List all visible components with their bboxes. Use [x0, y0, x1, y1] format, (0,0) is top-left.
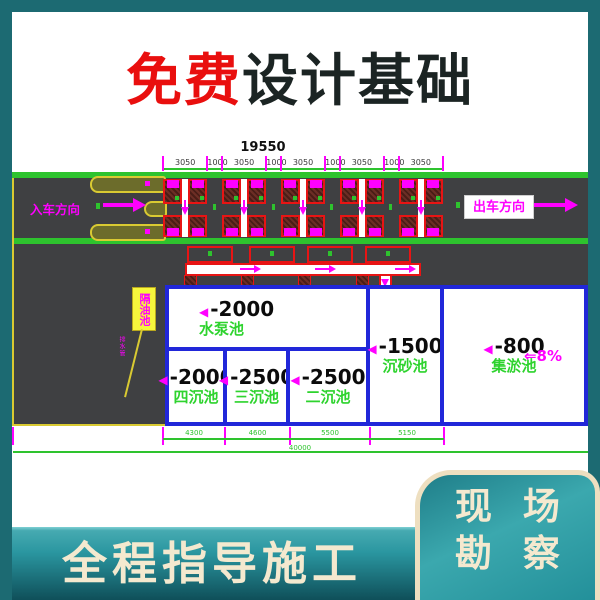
- slope-label: ⇐8%: [524, 347, 562, 365]
- pipe-note: 排水管: [117, 336, 126, 398]
- channel-arrow: [240, 268, 254, 270]
- green-mark: [293, 196, 297, 200]
- wash-pad: [369, 180, 381, 188]
- wash-pad: [310, 228, 322, 236]
- slot-arrow: [302, 200, 304, 207]
- title-rest: 设计基础: [242, 49, 474, 114]
- channel-arrow: [395, 268, 409, 270]
- green-mark: [208, 251, 212, 256]
- pool-depth: ◀-2500: [219, 367, 294, 388]
- dim-seg-label: 3050: [399, 158, 443, 167]
- corner-panel: 现 场 勘 察: [415, 470, 600, 600]
- channel-arrow-head: [254, 265, 261, 273]
- wash-pad: [427, 228, 439, 236]
- dimension-total-label: 19550: [233, 140, 293, 155]
- green-mark: [411, 196, 415, 200]
- traffic-island-bottom: [90, 224, 166, 241]
- aisle-mark: [330, 204, 333, 210]
- green-mark: [200, 196, 204, 200]
- green-mark: [352, 196, 356, 200]
- slot-arrow-head: [358, 207, 366, 215]
- slot-arrow-head: [240, 207, 248, 215]
- green-mark: [96, 203, 100, 209]
- callout-box: 隔油池: [132, 287, 156, 331]
- dim-seg-label: 3050: [281, 158, 325, 167]
- corner-panel-line2: 勘 察: [420, 530, 595, 577]
- wash-pad: [251, 228, 263, 236]
- aisle-mark: [272, 204, 275, 210]
- pool-name: 三沉池: [234, 388, 279, 406]
- wash-pad: [402, 228, 414, 236]
- slot-arrow-head: [299, 207, 307, 215]
- traffic-island-top: [90, 176, 166, 193]
- slot-arrow-head: [417, 207, 425, 215]
- exit-direction-label: 出车方向: [473, 200, 525, 215]
- entry-direction-label: 入车方向: [30, 199, 80, 218]
- pool-depth: ◀-2500: [290, 367, 365, 388]
- dim-seg-label: 1000: [325, 158, 340, 167]
- entry-arrow: [103, 203, 133, 207]
- wash-pad: [226, 180, 238, 188]
- green-mark: [377, 196, 381, 200]
- dim-seg-label: 3050: [340, 158, 384, 167]
- slot-arrow: [420, 200, 422, 207]
- wash-pad: [310, 180, 322, 188]
- page-title: 免费设计基础: [0, 42, 600, 122]
- wash-pad: [192, 228, 204, 236]
- wash-pad: [369, 228, 381, 236]
- banner-text: 全程指导施工: [12, 527, 412, 600]
- dim-seg-label: 3050: [163, 158, 207, 167]
- green-mark: [386, 251, 390, 256]
- dim-seg-label: 1000: [266, 158, 281, 167]
- depth-arrow-icon: ◀: [290, 373, 299, 387]
- corner-panel-line1: 现 场: [420, 483, 595, 530]
- aisle-mark: [213, 204, 216, 210]
- dim-seg-label: 1000: [384, 158, 399, 167]
- green-mark: [234, 196, 238, 200]
- dim-seg-label: 3050: [222, 158, 266, 167]
- slot-arrow: [243, 200, 245, 207]
- green-mark: [318, 196, 322, 200]
- dim-seg-label: 4300: [163, 429, 225, 437]
- pool-depth: ◀-2000: [199, 299, 274, 320]
- dim-seg-label: 5150: [370, 429, 444, 437]
- pool-depth: ◀-1500: [367, 336, 442, 357]
- pool-pump: ◀-2000水泵池: [165, 285, 370, 351]
- depth-arrow-icon: ◀: [158, 373, 167, 387]
- exit-direction-box: 出车方向: [464, 195, 534, 219]
- slot-arrow: [361, 200, 363, 207]
- pool-three: ◀-2500三沉池: [223, 347, 290, 426]
- wash-pad: [343, 228, 355, 236]
- exit-arrow-head: [565, 198, 578, 212]
- pool-mud: ◀-800集淤池⇐8%: [440, 285, 588, 426]
- green-mark: [328, 251, 332, 256]
- wash-pad: [192, 180, 204, 188]
- slot-arrow-head: [181, 207, 189, 215]
- pool-name: 二沉池: [305, 388, 350, 406]
- depth-arrow-icon: ◀: [219, 373, 228, 387]
- entry-arrow-head: [133, 198, 146, 212]
- wash-pad: [402, 180, 414, 188]
- wash-pad: [226, 228, 238, 236]
- site-boundary-left: [12, 178, 14, 426]
- wash-pad: [167, 180, 179, 188]
- slot-arrow: [184, 200, 186, 207]
- wash-pad: [343, 180, 355, 188]
- pool-sand: ◀-1500沉砂池: [366, 285, 444, 426]
- wash-pad: [284, 180, 296, 188]
- wash-pad: [251, 180, 263, 188]
- pool-two: ◀-2500二沉池: [286, 347, 370, 426]
- channel-arrow: [315, 268, 329, 270]
- green-mark: [259, 196, 263, 200]
- green-mark: [456, 202, 460, 208]
- depth-arrow-icon: ◀: [483, 342, 492, 356]
- dim-seg-label: 5500: [290, 429, 370, 437]
- island-marker: [145, 181, 150, 186]
- dim-tick: [442, 156, 444, 171]
- island-marker: [145, 229, 150, 234]
- green-mark: [175, 196, 179, 200]
- pool-four: ◀-2000四沉池: [165, 347, 227, 426]
- dim-tick: [12, 427, 14, 445]
- green-mark: [436, 196, 440, 200]
- green-mark: [270, 251, 274, 256]
- dim-line: [163, 168, 443, 170]
- pool-name: 四沉池: [173, 388, 218, 406]
- pool-name: 水泵池: [199, 320, 244, 338]
- channel-arrow-head: [329, 265, 336, 273]
- wash-pad: [427, 180, 439, 188]
- exit-arrow: [534, 203, 565, 207]
- dim-seg-label: 4600: [225, 429, 290, 437]
- dim-seg-label: 1000: [207, 158, 222, 167]
- wash-pad: [167, 228, 179, 236]
- dim-line: [163, 438, 444, 440]
- site-boundary-bottom: [12, 424, 165, 426]
- wash-pad: [284, 228, 296, 236]
- channel-arrow-head: [409, 265, 416, 273]
- depth-arrow-icon: ◀: [199, 305, 208, 319]
- promo-image: 免费设计基础 19550 305010003050100030501000305…: [0, 0, 600, 600]
- dim-overall-label: 40000: [270, 444, 330, 452]
- pool-name: 沉砂池: [382, 357, 427, 375]
- depth-arrow-icon: ◀: [367, 342, 376, 356]
- title-highlight: 免费: [126, 49, 242, 114]
- aisle-mark: [389, 204, 392, 210]
